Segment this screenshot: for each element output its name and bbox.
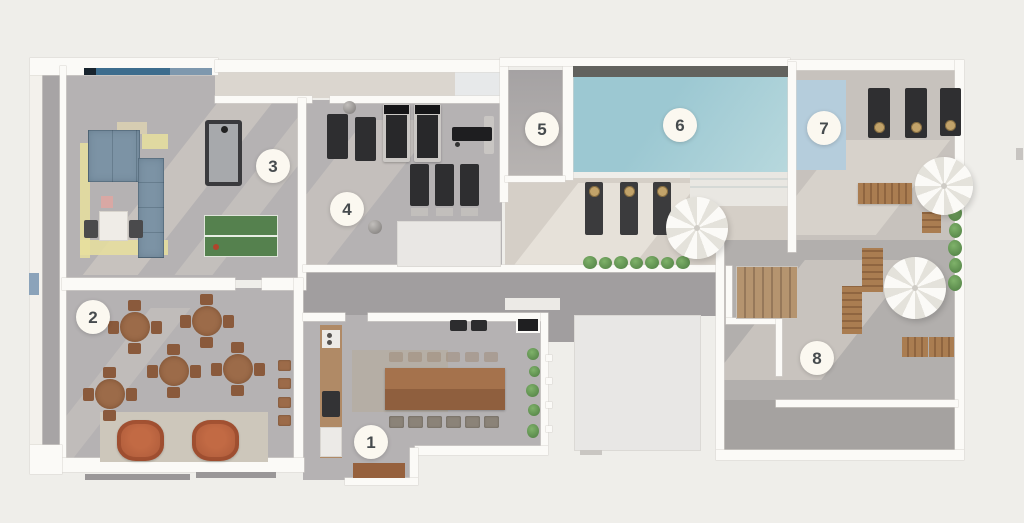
dining-chair — [103, 367, 116, 378]
floor-plan: 1 2 3 4 5 6 7 8 — [0, 0, 1024, 523]
wall-hallway-top — [215, 60, 507, 72]
dining-chair — [200, 294, 213, 305]
hedge-plant — [949, 258, 962, 273]
terrace-lounger — [862, 248, 883, 292]
treadmill — [383, 104, 410, 162]
grill-station — [516, 317, 540, 333]
dining-chair — [167, 344, 180, 355]
pool-lounger — [620, 182, 638, 235]
dining-chair — [211, 363, 222, 376]
window-strip-light — [170, 68, 212, 75]
exercise-ball — [343, 101, 356, 114]
wall-hallway-bottom-b — [330, 96, 503, 103]
balcony-floor — [40, 66, 62, 445]
vertical-garden-plant — [526, 384, 539, 397]
vertical-garden-plant — [529, 366, 540, 377]
terrace-parapet-2 — [726, 318, 781, 324]
bar-stool — [278, 397, 291, 408]
terrace-lounger — [842, 286, 862, 334]
ping-pong-table — [204, 215, 278, 257]
gym-shelf — [436, 208, 453, 216]
dining-chair — [151, 321, 162, 334]
wall-games-dining-b — [262, 278, 298, 290]
pool-table-light — [221, 126, 228, 133]
table-chair — [427, 352, 441, 362]
room-marker-4: 4 — [330, 192, 364, 226]
wall-top-sundeck — [788, 60, 960, 70]
dining-chair — [126, 388, 137, 401]
wall-pool-right — [788, 62, 796, 252]
room-marker-3: 3 — [256, 149, 290, 183]
threshold-strip — [196, 472, 276, 478]
table-chair — [389, 352, 403, 362]
gym-shelf — [411, 208, 428, 216]
dining-chair — [231, 385, 244, 396]
wall-games-gym — [298, 98, 306, 290]
dining-chair — [103, 410, 116, 421]
planter-shrub — [676, 256, 690, 269]
terrace-parapet-1 — [726, 266, 732, 324]
lounger-pillow — [657, 186, 668, 197]
sink-basin — [327, 340, 332, 345]
bench-press-bench — [452, 127, 492, 141]
dining-chair — [83, 388, 94, 401]
sun-lounger — [940, 88, 961, 136]
dining-chair — [167, 387, 180, 398]
exterior-tab — [1016, 148, 1023, 160]
wall-tab-3 — [546, 402, 552, 408]
dining-table-set — [210, 341, 266, 397]
sun-lounger — [905, 88, 927, 138]
table-stool — [446, 416, 461, 428]
vertical-garden-plant — [527, 424, 539, 438]
bar-stool — [278, 378, 291, 389]
sideboard — [353, 463, 405, 478]
vertical-garden-plant — [528, 404, 540, 416]
dining-table-top — [223, 354, 253, 384]
dining-table-top — [159, 356, 189, 386]
wall-games-dining-a — [62, 278, 235, 290]
pool-infinity-edge — [573, 66, 788, 77]
table-chair — [465, 352, 479, 362]
window-strip-navy — [84, 68, 96, 75]
pool-table — [205, 120, 242, 186]
lounge-ottoman-left — [84, 220, 98, 238]
room-marker-7: 7 — [807, 111, 841, 145]
wall-corner-bottom-left — [30, 445, 62, 474]
table-stool — [484, 416, 499, 428]
table-stool — [427, 416, 442, 428]
dining-chair — [128, 343, 141, 354]
gym-mat — [410, 164, 429, 206]
window-strip-blue — [96, 68, 170, 75]
room-marker-5: 5 — [525, 112, 559, 146]
ping-pong-paddle — [213, 244, 219, 250]
terrace-parapet-4 — [776, 400, 958, 407]
wall-terrace-bottom — [716, 450, 964, 460]
sectional-sofa-side — [138, 158, 164, 258]
umbrella — [915, 157, 973, 215]
wall-sauna-right — [563, 62, 573, 180]
bench-press-wheel — [455, 142, 460, 147]
dining-chair — [190, 365, 201, 378]
wall-tab-2 — [546, 378, 552, 384]
treadmill-belt — [386, 115, 407, 158]
wall-dining-right — [294, 278, 303, 472]
deck-threshold — [505, 298, 560, 310]
table-stool — [465, 416, 480, 428]
bar-stool — [278, 360, 291, 371]
pool-lounger — [585, 182, 603, 235]
table-chair — [446, 352, 460, 362]
dining-chair — [180, 315, 191, 328]
wooden-side-table — [922, 212, 941, 233]
gym-mat — [327, 114, 348, 159]
planter-shrub — [583, 256, 597, 269]
wall-oven — [471, 320, 487, 331]
hedge-plant — [949, 223, 962, 238]
wall-deck-top — [505, 176, 565, 182]
kitchen-cabinet — [321, 428, 341, 456]
terrace-bench — [929, 337, 954, 357]
dining-chair — [128, 300, 141, 311]
table-stool — [408, 416, 423, 428]
dining-table-top — [120, 312, 150, 342]
room-marker-2: 2 — [76, 300, 110, 334]
umbrella — [666, 197, 728, 259]
sectional-sofa-top — [88, 130, 140, 182]
planter-shrub — [614, 256, 628, 269]
balcony-window-marker — [29, 273, 39, 295]
planter-shrub — [645, 256, 659, 269]
kitchen-cooktop — [322, 391, 340, 417]
sink-basin — [327, 333, 332, 338]
treadmill-belt — [417, 115, 438, 158]
exercise-ball — [368, 220, 382, 234]
room-marker-6: 6 — [663, 108, 697, 142]
wall-kitchen-bottom-right — [415, 446, 548, 455]
wooden-bench — [858, 183, 912, 204]
dining-table-set — [82, 366, 138, 422]
wall-tab-1 — [546, 355, 552, 361]
dining-chair — [254, 363, 265, 376]
terrace-lower-band — [718, 400, 958, 455]
planter-shrub — [630, 257, 643, 269]
balcony-outer-wall — [30, 58, 42, 454]
lounge-rug-yellow-top — [142, 134, 168, 149]
dining-table-set — [146, 343, 202, 399]
sun-lounger — [868, 88, 890, 138]
wall-kitchen-top-a — [303, 313, 345, 321]
terrace-bench — [902, 337, 928, 357]
hedge-plant — [948, 275, 962, 291]
dining-chair — [223, 315, 234, 328]
roof-block-tab — [580, 450, 602, 455]
lounger-pillow — [589, 186, 600, 197]
vertical-garden-plant — [527, 348, 539, 360]
treadmill-console — [415, 105, 440, 114]
dining-chair — [147, 365, 158, 378]
pool-step-line — [690, 178, 788, 180]
ping-pong-net-line — [204, 235, 278, 237]
bar-stool — [278, 415, 291, 426]
wall-top-pool — [500, 58, 790, 66]
dining-chair — [231, 342, 244, 353]
umbrella — [884, 257, 946, 319]
planter-shrub — [661, 257, 674, 269]
lounger-pillow — [624, 186, 635, 197]
treadmill — [414, 104, 441, 162]
terrace-parapet-3 — [776, 318, 782, 376]
lounge-ottoman-right — [129, 220, 143, 238]
roof-block — [575, 316, 700, 450]
room-marker-8: 8 — [800, 341, 834, 375]
gym-shelf — [461, 208, 478, 216]
wall-terrace-left — [716, 240, 724, 455]
wall-kitchen-bottom-left — [345, 478, 418, 485]
wall-balcony-inner — [60, 66, 66, 458]
pink-accent-rug — [101, 196, 113, 208]
room-marker-1: 1 — [354, 425, 388, 459]
armchair — [192, 420, 239, 461]
service-corridor-stub — [545, 316, 575, 342]
gym-mat — [460, 164, 479, 206]
dining-table-top — [192, 306, 222, 336]
kitchen-sink — [322, 330, 340, 348]
planter-shrub — [599, 257, 612, 269]
coffee-table — [100, 212, 127, 240]
gym-mat — [435, 164, 454, 206]
table-stool — [389, 416, 404, 428]
lounger-pillow — [945, 120, 956, 131]
gym-storage-block — [398, 222, 500, 266]
communal-table — [385, 368, 505, 410]
pool-step-line — [690, 186, 788, 188]
treadmill-console — [384, 105, 409, 114]
lounger-pillow — [874, 122, 885, 133]
table-chair — [484, 352, 498, 362]
wall-tab-4 — [546, 426, 552, 432]
armchair — [117, 420, 164, 461]
threshold-strip — [85, 474, 190, 480]
lounger-pillow — [911, 122, 922, 133]
table-chair — [408, 352, 422, 362]
hedge-plant — [948, 240, 962, 256]
stairs — [737, 267, 797, 318]
dining-chair — [108, 321, 119, 334]
gym-mat — [355, 117, 376, 161]
wall-oven — [450, 320, 467, 331]
dining-table-top — [95, 379, 125, 409]
